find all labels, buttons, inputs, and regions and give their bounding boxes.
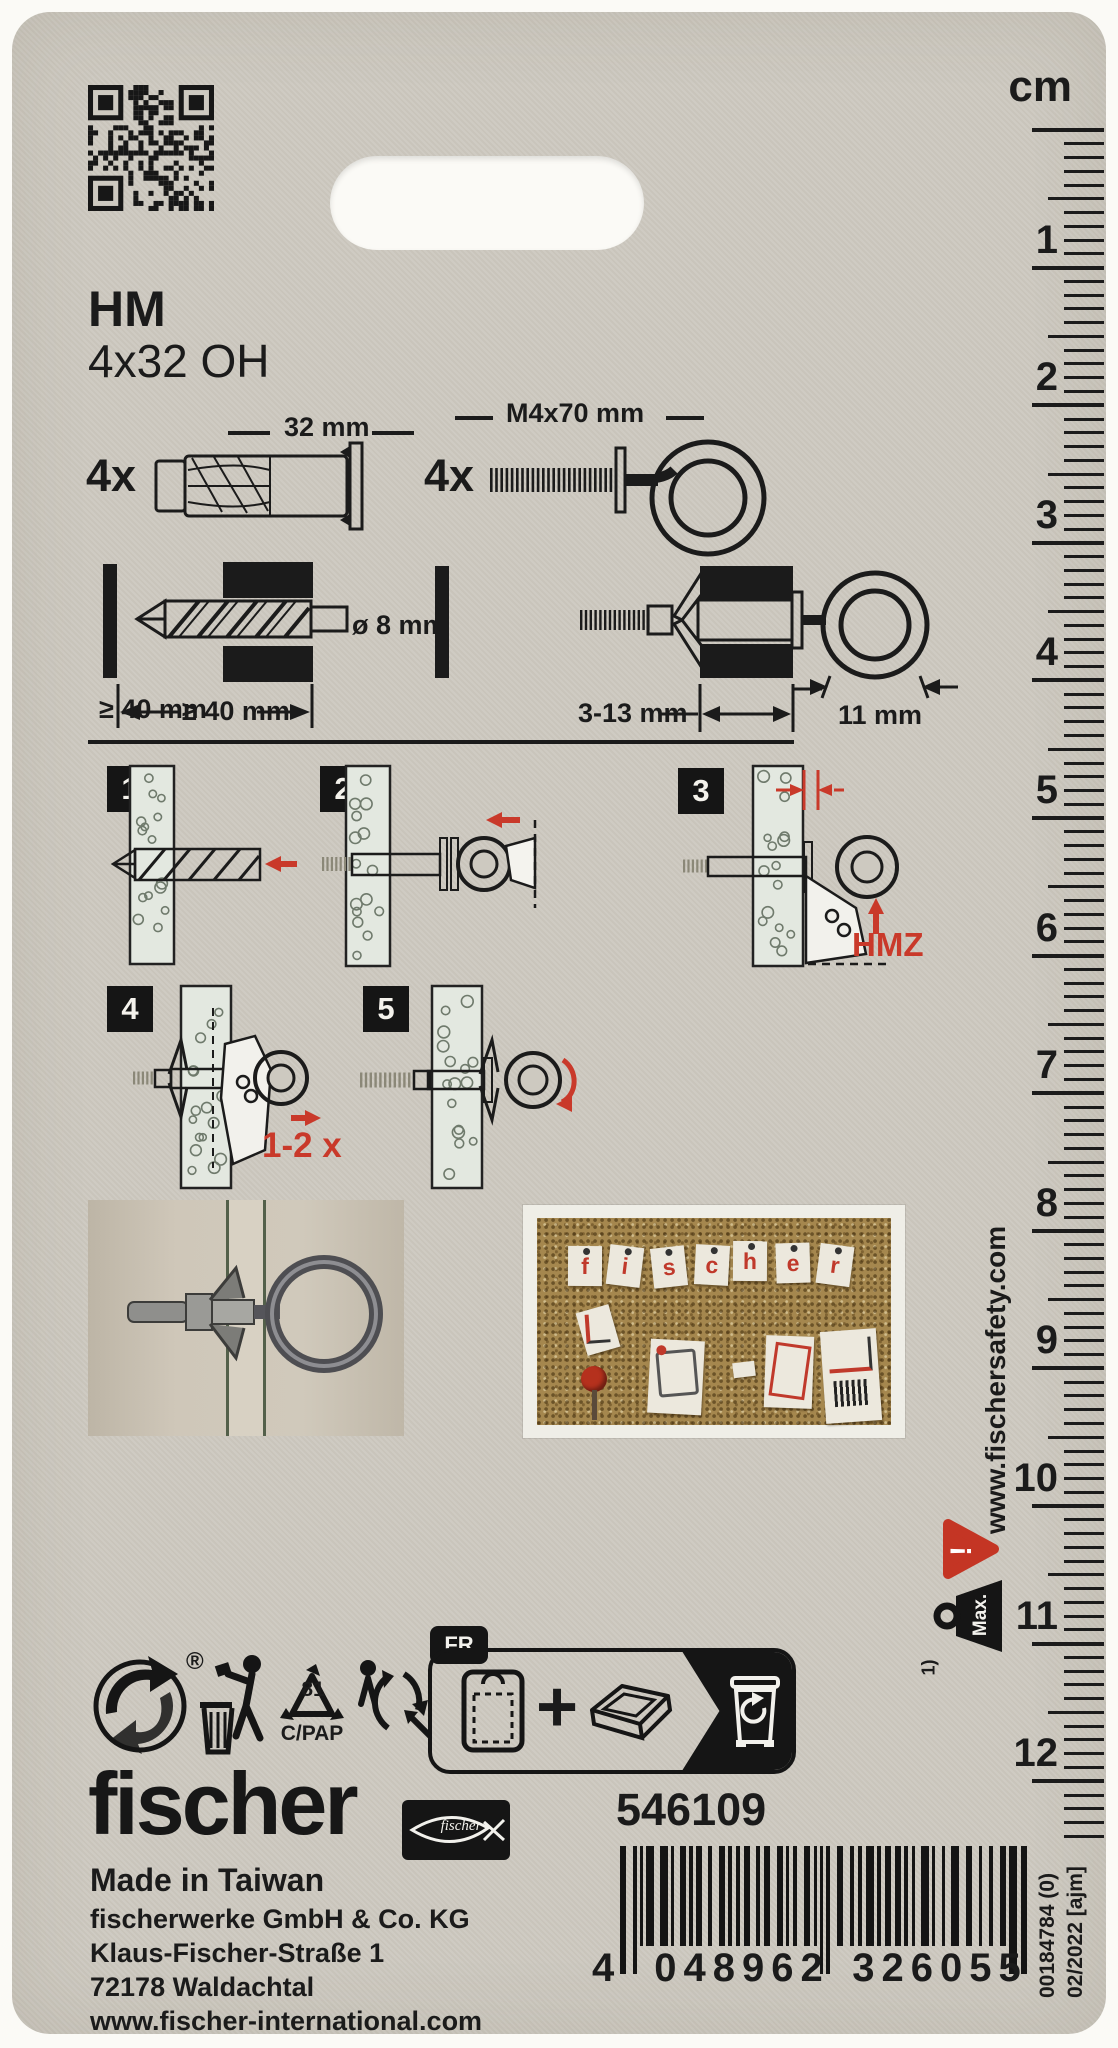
qr-code <box>88 85 214 211</box>
letter-paper: e <box>775 1243 810 1284</box>
ruler-tick <box>1048 610 1104 613</box>
pushpin-stem <box>592 1390 597 1420</box>
ruler-tick <box>1064 225 1104 228</box>
barcode-bar <box>804 1846 810 1946</box>
ruler-tick <box>1048 1436 1104 1439</box>
company-street: Klaus-Fischer-Straße 1 <box>90 1936 384 1970</box>
footnote-marker: 1) <box>919 1642 940 1676</box>
barcode-bar <box>850 1846 854 1946</box>
barcode-bar <box>689 1846 693 1946</box>
ruler-tick <box>1064 638 1104 641</box>
barcode-bar <box>633 1846 637 1974</box>
ruler-tick <box>1064 1491 1104 1494</box>
ruler-tick <box>1064 844 1104 847</box>
barcode-bar <box>744 1846 750 1946</box>
barcode-bar <box>837 1846 843 1946</box>
pinned-note <box>576 1304 621 1356</box>
ruler-number: 4 <box>994 630 1058 675</box>
ruler-tick <box>1048 197 1104 200</box>
paper-pin <box>665 1248 673 1256</box>
tray-icon <box>584 1674 676 1748</box>
ruler-number: 2 <box>994 355 1058 400</box>
edge-print-mark <box>10 615 36 701</box>
fish-logo-script: fischer <box>428 1818 494 1835</box>
ruler-tick <box>1064 693 1104 696</box>
ruler-tick <box>1064 624 1104 627</box>
ruler-tick <box>1064 239 1104 242</box>
ruler-tick <box>1048 1711 1104 1714</box>
ruler-tick <box>1064 1216 1104 1219</box>
ruler-tick <box>1064 982 1104 985</box>
brand-logo-text: fischer <box>88 1758 356 1850</box>
ruler-tick <box>1064 1119 1104 1122</box>
ruler-tick <box>1064 720 1104 723</box>
ruler-tick <box>1064 418 1104 421</box>
ruler-tick <box>1064 1807 1104 1810</box>
ruler-number: 1 <box>994 218 1058 263</box>
edge-print-mark <box>10 1226 36 1318</box>
ruler-tick <box>1064 184 1104 187</box>
barcode-bar <box>885 1846 891 1946</box>
ruler-tick <box>1064 830 1104 833</box>
package-back-photo: HM 4x32 OH 32 mm 4x M4x70 mm 4x <box>0 0 1118 2048</box>
application-photo-pinboard: fischer <box>523 1205 905 1438</box>
step2-diagram <box>308 758 543 973</box>
plus-sign: + <box>536 1674 578 1740</box>
ruler-tick <box>1064 294 1104 297</box>
dimension-dash <box>228 431 270 435</box>
ruler-tick <box>1064 486 1104 489</box>
pinned-note <box>820 1328 882 1424</box>
paper-pin <box>625 1248 633 1256</box>
barcode-bar <box>877 1846 881 1946</box>
ruler-tick <box>1064 1835 1104 1838</box>
ruler-tick <box>1064 1202 1104 1205</box>
barcode-bar <box>989 1846 993 1946</box>
material-code: C/PAP <box>272 1722 352 1746</box>
ruler-tick <box>1064 1697 1104 1700</box>
ruler-tick <box>1064 1188 1104 1191</box>
barcode-bar <box>786 1846 789 1946</box>
ruler-tick <box>1032 1504 1104 1508</box>
ruler-number: 10 <box>994 1456 1058 1501</box>
letter-paper: h <box>733 1241 767 1281</box>
ruler-tick <box>1064 1078 1104 1081</box>
ruler-tick <box>1064 390 1104 393</box>
barcode-bar <box>912 1846 915 1946</box>
ruler-tick <box>1064 280 1104 283</box>
step1-diagram <box>105 758 305 970</box>
barcode-bar <box>660 1846 668 1946</box>
barcode-bar <box>620 1846 626 1974</box>
ruler-tick <box>1064 789 1104 792</box>
barcode-bar <box>814 1846 817 1946</box>
ruler-tick <box>1064 170 1104 173</box>
ruler-tick <box>1032 1642 1104 1646</box>
barcode-group2: 326055 <box>846 1946 1034 1991</box>
ruler-tick <box>1064 1766 1104 1769</box>
product-series: HM <box>88 280 166 338</box>
barcode-bar <box>979 1846 982 1946</box>
ruler-tick <box>1032 1091 1104 1095</box>
origin-label: Made in Taiwan <box>90 1862 324 1899</box>
material-thickness-label: 3-13 mm <box>578 698 688 729</box>
ruler-tick <box>1064 1670 1104 1673</box>
paper-pin <box>835 1247 843 1255</box>
barcode-bar <box>756 1846 760 1946</box>
ruler-tick <box>1048 885 1104 888</box>
ruler-tick <box>1064 1408 1104 1411</box>
repeat-label: 1-2 x <box>262 1126 342 1166</box>
ruler-tick <box>1048 1161 1104 1164</box>
ruler-tick <box>1032 1779 1104 1783</box>
section-divider <box>88 740 794 744</box>
tool-label: HMZ <box>852 926 923 964</box>
euro-hang-slot <box>330 156 644 250</box>
ruler-tick <box>1064 1422 1104 1425</box>
ruler-tick <box>1064 1628 1104 1631</box>
ruler-tick <box>1064 762 1104 765</box>
pushpin <box>581 1366 607 1392</box>
ruler-number: 9 <box>994 1318 1058 1363</box>
ruler-tick <box>1064 1546 1104 1549</box>
eyebolt-qty: 4x <box>424 450 474 502</box>
ruler-tick <box>1064 1037 1104 1040</box>
ruler-tick <box>1064 1477 1104 1480</box>
ruler-tick <box>1064 1738 1104 1741</box>
ruler-tick <box>1064 431 1104 434</box>
ruler-number: 8 <box>994 1181 1058 1226</box>
ruler-tick <box>1064 1463 1104 1466</box>
barcode-bar <box>777 1846 783 1946</box>
ruler-tick <box>1064 1450 1104 1453</box>
barcode-bar <box>640 1846 643 1946</box>
ruler-number: 12 <box>994 1731 1058 1776</box>
ruler-tick <box>1064 514 1104 517</box>
ruler-tick <box>1064 1147 1104 1150</box>
recycling-bin-icon <box>724 1670 786 1752</box>
ruler-tick <box>1064 156 1104 159</box>
dimension-dash <box>372 431 414 435</box>
green-dot-icon <box>90 1652 190 1756</box>
ruler-tick <box>1064 899 1104 902</box>
ruler-tick <box>1064 1133 1104 1136</box>
ruler-tick <box>1064 1284 1104 1287</box>
ruler-tick <box>1064 321 1104 324</box>
ruler-tick <box>1064 307 1104 310</box>
ruler-tick <box>1064 1271 1104 1274</box>
ruler-tick <box>1064 1009 1104 1012</box>
barcode-bar <box>736 1846 740 1946</box>
resin-code: 81 <box>294 1678 332 1702</box>
ruler-tick <box>1064 376 1104 379</box>
ruler-tick <box>1064 1587 1104 1590</box>
hole-depth-label: ≥ 40 mm <box>182 696 290 727</box>
barcode-bar <box>764 1846 770 1946</box>
barcode-bar <box>680 1846 686 1946</box>
anchor-qty: 4x <box>86 450 136 502</box>
ruler-tick <box>1064 362 1104 365</box>
ruler-tick <box>1064 775 1104 778</box>
ruler-tick <box>1064 913 1104 916</box>
barcode-bar <box>728 1846 732 1946</box>
ruler-number: 7 <box>994 1043 1058 1088</box>
ruler-tick <box>1064 1725 1104 1728</box>
ruler-tick <box>1032 541 1104 545</box>
ruler-tick <box>1064 1312 1104 1315</box>
ruler-tick <box>1048 1298 1104 1301</box>
ruler-tick <box>1064 349 1104 352</box>
company-name: fischerwerke GmbH & Co. KG <box>90 1902 470 1936</box>
ruler-tick <box>1032 1366 1104 1370</box>
cork-board: fischer <box>537 1218 891 1425</box>
ruler-tick <box>1064 940 1104 943</box>
installed-eyebolt <box>118 1240 388 1400</box>
ruler-tick <box>1032 1229 1104 1233</box>
ruler-tick <box>1064 858 1104 861</box>
eye-diameter-label: 11 mm <box>838 700 922 731</box>
company-city: 72178 Waldachtal <box>90 1970 314 2004</box>
ruler-tick <box>1064 528 1104 531</box>
ruler-tick <box>1064 1560 1104 1563</box>
ruler-tick <box>1064 252 1104 255</box>
barcode-bar <box>921 1846 929 1946</box>
ruler-tick <box>1064 142 1104 145</box>
ruler-tick <box>1064 651 1104 654</box>
barcode-bar <box>696 1846 702 1946</box>
product-size: 4x32 OH <box>88 334 270 388</box>
barcode-bar <box>719 1846 725 1946</box>
ruler-tick <box>1048 1573 1104 1576</box>
disposal-instruction-box: + <box>428 1648 796 1774</box>
barcode-bar <box>858 1846 862 1946</box>
ruler-tick <box>1064 1794 1104 1797</box>
ruler-tick <box>1064 872 1104 875</box>
barcode-bar <box>966 1846 972 1946</box>
letter-paper: f <box>568 1246 602 1286</box>
barcode-bar <box>646 1846 654 1946</box>
ruler-tick <box>1032 678 1104 682</box>
barcode-group1: 048962 <box>648 1946 836 1991</box>
application-photo-wall <box>88 1200 404 1436</box>
ruler-tick <box>1064 1339 1104 1342</box>
ruler-tick <box>1032 403 1104 407</box>
barcode-lead-digit: 4 <box>592 1946 614 1991</box>
pinned-note <box>732 1361 756 1379</box>
letter-paper: c <box>694 1244 730 1286</box>
ruler-tick <box>1064 569 1104 572</box>
ruler-tick <box>1064 803 1104 806</box>
ruler-tick <box>1064 1518 1104 1521</box>
anchor-sleeve-diagram <box>152 438 370 534</box>
tidyman-icon <box>198 1652 276 1760</box>
barcode-bar <box>866 1846 874 1946</box>
triman-icon <box>352 1652 438 1742</box>
ruler-tick <box>1064 1532 1104 1535</box>
max-load-label: Max. <box>970 1584 992 1646</box>
paper-pin <box>711 1247 718 1254</box>
ruler-number: 3 <box>994 493 1058 538</box>
barcode-bar <box>708 1846 712 1946</box>
edge-print-mark <box>10 425 36 537</box>
ruler-tick <box>1064 555 1104 558</box>
ruler-tick <box>1064 1752 1104 1755</box>
ruler-tick <box>1064 1821 1104 1824</box>
barcode-bar <box>793 1846 797 1946</box>
ruler-tick <box>1064 1381 1104 1384</box>
pinned-note <box>764 1335 814 1409</box>
ruler-tick <box>1064 459 1104 462</box>
ruler-tick <box>1032 128 1104 132</box>
letter-paper: i <box>606 1244 645 1288</box>
blister-card-icon <box>460 1668 526 1754</box>
ruler-unit: cm <box>996 62 1072 112</box>
paper-pin <box>584 1248 591 1255</box>
ruler-tick <box>1064 500 1104 503</box>
ruler-number: 5 <box>994 768 1058 813</box>
paper-pin <box>749 1243 756 1250</box>
ruler-tick <box>1064 968 1104 971</box>
ruler-tick <box>1064 596 1104 599</box>
date-code: 02/2022 [ajm] <box>1064 1852 1088 1998</box>
barcode-bar <box>942 1846 945 1946</box>
ruler-tick <box>1064 706 1104 709</box>
ruler-tick <box>1064 1326 1104 1329</box>
warning-exclamation: ! <box>945 1533 979 1569</box>
ruler-tick <box>1064 995 1104 998</box>
ruler-tick <box>1064 1353 1104 1356</box>
barcode-bar <box>671 1846 674 1946</box>
ruler-tick <box>1064 1257 1104 1260</box>
barcode-bar <box>1000 1846 1006 1946</box>
company-website: www.fischer-international.com <box>90 2004 482 2038</box>
print-ref: 00184784 (0) <box>1036 1852 1060 1998</box>
barcode-bar <box>904 1846 908 1946</box>
ruler-tick <box>1064 1174 1104 1177</box>
barcode-bar <box>895 1846 901 1946</box>
ruler-tick <box>1064 583 1104 586</box>
ruler-tick <box>1048 1023 1104 1026</box>
ruler-tick <box>1064 1615 1104 1618</box>
article-number: 546109 <box>616 1784 766 1836</box>
ruler-tick <box>1064 445 1104 448</box>
paper-pin <box>790 1245 797 1252</box>
ruler-tick <box>1032 816 1104 820</box>
ruler-tick <box>1064 927 1104 930</box>
ruler-tick <box>1064 734 1104 737</box>
ruler-tick <box>1048 473 1104 476</box>
ruler-tick <box>1064 1064 1104 1067</box>
ruler-tick <box>1064 1601 1104 1604</box>
ruler-tick <box>1064 1106 1104 1109</box>
step5-diagram <box>350 978 585 1193</box>
ruler-number: 11 <box>994 1594 1058 1639</box>
barcode-bar <box>932 1846 935 1946</box>
ruler-tick <box>1048 748 1104 751</box>
ruler-tick <box>1064 211 1104 214</box>
barcode-bar <box>951 1846 959 1946</box>
ruler-tick <box>1064 1050 1104 1053</box>
letter-paper: r <box>815 1243 854 1287</box>
ruler-tick <box>1064 665 1104 668</box>
ruler-tick <box>1032 954 1104 958</box>
ruler-tick <box>1064 1394 1104 1397</box>
ruler-tick <box>1064 1656 1104 1659</box>
ruler-tick <box>1064 1243 1104 1246</box>
pinned-note <box>647 1339 705 1416</box>
ruler-tick <box>1064 1683 1104 1686</box>
letter-paper: s <box>650 1245 688 1288</box>
ruler-number: 6 <box>994 906 1058 951</box>
ruler-tick <box>1032 266 1104 270</box>
ruler-tick <box>1048 335 1104 338</box>
